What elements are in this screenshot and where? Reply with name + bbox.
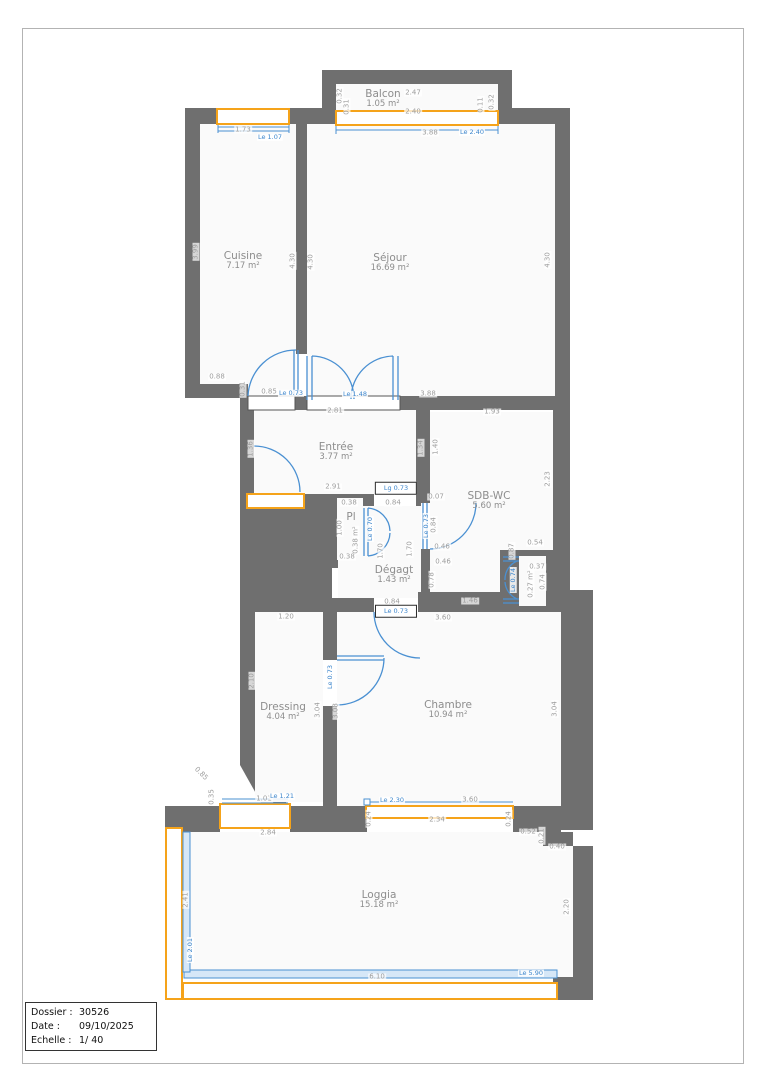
title-row-dossier: Dossier : 30526 xyxy=(31,1006,151,1020)
dressing-window xyxy=(220,804,290,828)
balcon-window xyxy=(336,111,498,125)
loggia-left-window xyxy=(166,828,182,999)
title-row-date: Date : 09/10/2025 xyxy=(31,1020,151,1034)
echelle-value: 1/ 40 xyxy=(79,1034,151,1048)
chambre-window xyxy=(366,806,513,818)
title-block: Dossier : 30526 Date : 09/10/2025 Echell… xyxy=(25,1002,157,1051)
floor-plan-page: Balcon1.05 m²Cuisine7.17 m²Séjour16.69 m… xyxy=(0,0,763,1080)
dossier-label: Dossier : xyxy=(31,1006,79,1020)
echelle-label: Echelle : xyxy=(31,1034,79,1048)
loggia-bottom-window xyxy=(183,983,557,999)
floor-plan-drawing xyxy=(0,0,763,1080)
date-value: 09/10/2025 xyxy=(79,1020,151,1034)
front-door-frame xyxy=(247,494,304,508)
title-row-echelle: Echelle : 1/ 40 xyxy=(31,1034,151,1048)
date-label: Date : xyxy=(31,1020,79,1034)
cuisine-window xyxy=(217,109,289,124)
dossier-value: 30526 xyxy=(79,1006,151,1020)
